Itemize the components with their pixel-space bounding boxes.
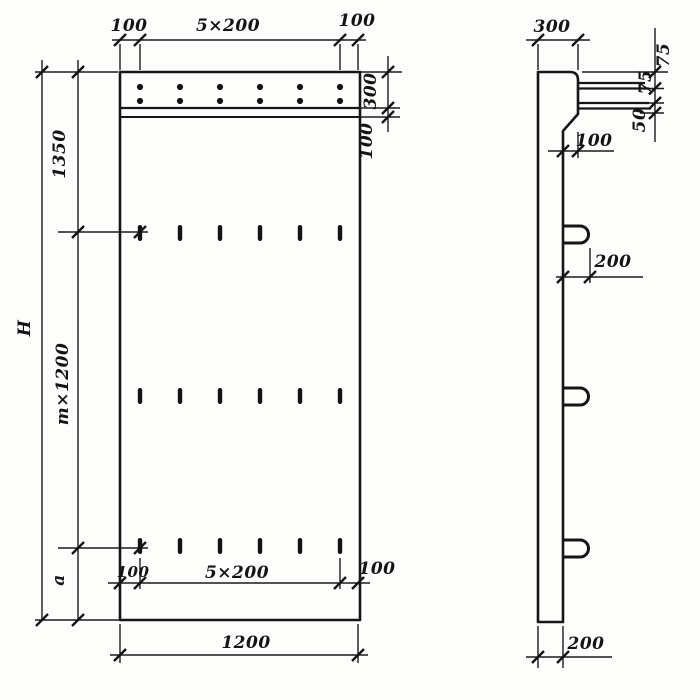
side-right-dimension: 75 75 50 [582, 28, 674, 142]
slot-row-3 [138, 538, 342, 554]
dim-label-band-100: 100 [357, 123, 377, 160]
side-bottom-dimension: 200 [526, 626, 612, 668]
side-loop-dimension: 200 [556, 248, 643, 283]
dim-label-ib-left: 100 [117, 563, 150, 581]
slot-row-1 [138, 225, 342, 241]
slot-mark [258, 388, 262, 404]
dim-label-step-100: 100 [576, 131, 613, 151]
dim-label-top-center: 5×200 [196, 16, 260, 36]
side-step-dimension: 100 [548, 131, 614, 158]
slot-mark [178, 388, 182, 404]
dim-label-H: H [15, 319, 35, 337]
front-left-dimension: H 1350 m×1200 a [15, 60, 148, 626]
dim-label-loop-200: 200 [594, 252, 632, 272]
slot-mark [298, 388, 302, 404]
rebar-dot [177, 84, 183, 90]
rebar-dot [297, 98, 303, 104]
rebar-dot [297, 84, 303, 90]
dim-label-300: 300 [534, 17, 571, 37]
rebar-dots [137, 84, 343, 104]
slot-mark [338, 225, 342, 241]
slot-mark [138, 388, 142, 404]
dim-label-50: 50 [630, 108, 650, 133]
slot-mark [338, 538, 342, 554]
dim-label-75-2: 75 [636, 70, 656, 95]
lifting-loop [563, 226, 589, 243]
rebar-dot [337, 84, 343, 90]
slot-mark [258, 225, 262, 241]
slot-mark [218, 225, 222, 241]
technical-drawing: 100 5×200 100 300 100 [0, 0, 700, 700]
rebar-dot [177, 98, 183, 104]
dim-label-bottom-200: 200 [567, 634, 605, 654]
front-view: 100 5×200 100 300 100 [15, 11, 402, 663]
slot-mark [298, 538, 302, 554]
rebar-dot [137, 84, 143, 90]
slot-mark [178, 538, 182, 554]
dim-label-75-1: 75 [654, 43, 674, 68]
dim-label-top-right: 100 [339, 11, 376, 31]
dim-label-ib-right: 100 [359, 559, 396, 579]
slot-mark [218, 538, 222, 554]
rebar-dot [217, 98, 223, 104]
lifting-loop [563, 388, 589, 405]
slot-mark [298, 225, 302, 241]
dim-label-a: a [49, 574, 69, 586]
rebar-dot [137, 98, 143, 104]
rebar-dot [217, 84, 223, 90]
front-top-dimension: 100 5×200 100 [111, 11, 376, 70]
slot-row-2 [138, 388, 342, 404]
side-top-dimension: 300 [526, 17, 590, 70]
rebar-dot [337, 98, 343, 104]
dim-label-m-1200: m×1200 [53, 343, 73, 426]
drawing-canvas: 100 5×200 100 300 100 [0, 0, 700, 700]
dim-label-strip-300: 300 [361, 73, 381, 110]
dim-label-top-left: 100 [111, 16, 148, 36]
front-bottom-dimension: 1200 [110, 624, 368, 663]
dim-label-1200: 1200 [221, 633, 270, 653]
dim-label-ib-center: 5×200 [205, 563, 269, 583]
rebar-dot [257, 84, 263, 90]
lifting-loop [563, 540, 589, 557]
front-right-dimension: 300 100 [357, 56, 402, 160]
slot-mark [178, 225, 182, 241]
slot-mark [338, 388, 342, 404]
panel-outline [120, 72, 360, 620]
rebar-dot [257, 98, 263, 104]
dim-label-1350: 1350 [50, 129, 70, 178]
side-view: 300 75 75 50 100 [526, 17, 674, 668]
slot-mark [258, 538, 262, 554]
slot-mark [218, 388, 222, 404]
front-inner-bottom-dimension: 100 5×200 100 [108, 558, 396, 589]
